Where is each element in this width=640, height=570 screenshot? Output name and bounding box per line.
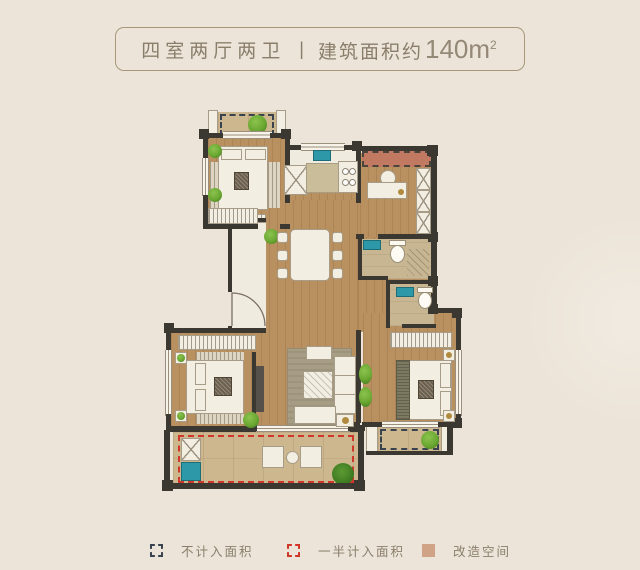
wardrobe [208,208,258,224]
wall-segment [166,426,258,432]
balcony-door-window [223,131,272,139]
window [165,350,172,416]
plant-icon [208,188,222,202]
plant-icon [421,431,439,449]
refrigerator [284,165,308,195]
bed-throw [396,360,410,420]
floorplan-page: { "title": { "rooms": "四室两厅两卫", "separat… [0,0,640,570]
wall-segment [386,284,390,328]
master-balcony-door [382,421,440,428]
wall-corner [162,480,173,491]
legend-item-not-counted: 不计入面积 [150,541,254,560]
plant-icon [332,463,354,485]
wall-segment [166,333,171,351]
bed-runner [418,380,434,399]
floor-plan [0,0,640,570]
balcony-master-pier [366,424,378,453]
wall-corner [281,129,291,139]
balcony-table [286,451,299,464]
pillow [195,363,206,385]
renovation-space-strip [362,151,431,167]
wall-corner [428,276,438,286]
balcony-chair [262,446,284,468]
table-lamp [446,352,452,358]
kitchen-counter [306,163,340,193]
table-lamp [446,413,452,419]
balcony-chair [300,446,322,468]
wall-segment [362,276,388,280]
legend-label: 不计入面积 [181,541,254,560]
window [455,350,462,416]
balcony-cabinet [181,438,201,461]
shower-area [407,249,429,276]
armchair [306,346,332,360]
bedside-rug [196,352,244,360]
window [202,158,209,196]
wall-segment [362,422,383,427]
study-wardrobe-door [416,212,431,234]
toilet [390,245,405,263]
dining-chair [277,250,288,261]
wall-segment [456,313,461,352]
wall-corner [352,141,362,151]
bed-runner [214,377,232,396]
dining-chair [277,232,288,243]
wall-corner [164,323,174,333]
bathroom-sink [396,287,414,297]
legend-label: 改造空间 [453,541,511,560]
tv-console [256,366,264,412]
wall-segment [358,239,362,280]
salmon-solid-swatch-icon [422,544,435,557]
bedside-rug [268,162,280,208]
navy-dashed-swatch-icon [150,544,163,557]
wall-corner [354,480,365,491]
stove-burners [338,161,358,193]
kitchen-sink [313,150,331,161]
bedside-rug [196,414,244,424]
wardrobe [390,332,452,348]
dining-chair [332,268,343,279]
bed-runner [234,172,249,190]
wall-segment [431,150,437,238]
dining-chair [332,232,343,243]
plant-icon [177,354,185,362]
wall-segment [164,483,364,489]
dining-chair [332,250,343,261]
pillow [440,363,451,388]
legend-item-half-counted: 一半计入面积 [287,541,405,560]
wall-segment [402,324,436,328]
dining-chair [277,268,288,279]
wall-segment [166,328,266,333]
legend-label: 一半计入面积 [318,541,405,560]
pillow [195,389,206,411]
table-lamp [342,417,349,424]
wall-corner [199,129,209,139]
plant-icon [359,364,372,384]
plant-icon [177,412,185,420]
wall-segment [386,324,390,328]
sofa [334,356,356,414]
desk-lamp [398,189,404,195]
wall-corner [427,145,438,156]
wall-segment [228,222,232,292]
study-wardrobe-door [416,190,431,212]
legend-item-renovation-space: 改造空间 [422,541,511,560]
sofa-chaise [294,406,336,424]
coffee-table [303,371,333,399]
wall-segment [280,224,290,229]
toilet [418,292,432,309]
dining-table [290,229,330,281]
wall-corner [452,308,462,318]
pillow [221,149,242,160]
red-dashed-swatch-icon [287,544,300,557]
plant-icon [243,412,259,428]
study-wardrobe-door [416,168,431,190]
laundry-sink [181,462,201,481]
wardrobe [178,335,256,350]
entry-door-arc [230,291,266,327]
wall-segment [366,451,453,455]
plant-icon [208,144,222,158]
pillow [245,149,266,160]
bathroom-sink [363,240,381,250]
wall-segment [287,145,302,150]
plant-icon [359,387,372,407]
